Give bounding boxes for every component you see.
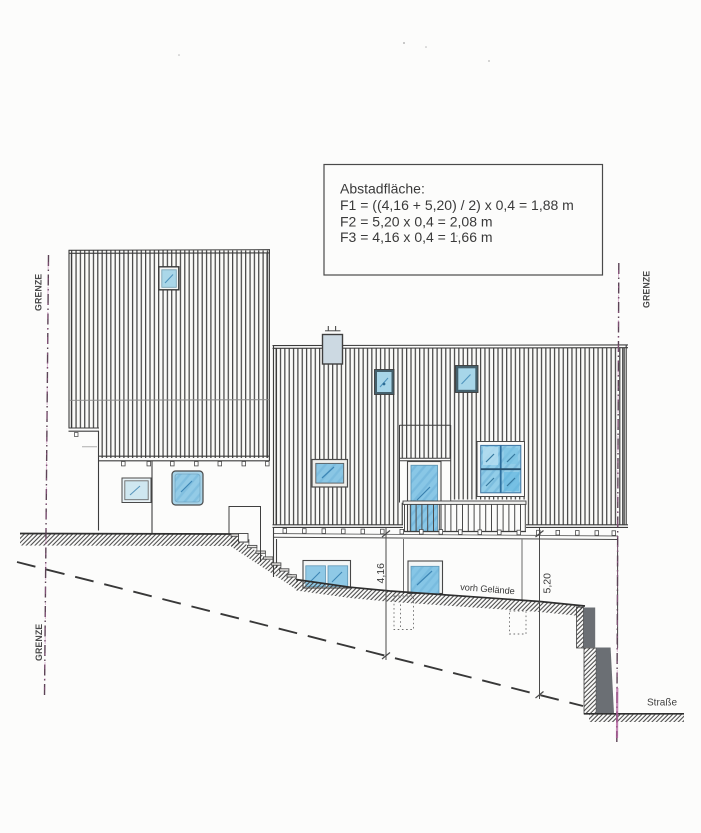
svg-text:F2 = 5,20 x 0,4 = 2,08 m: F2 = 5,20 x 0,4 = 2,08 m <box>340 214 493 230</box>
svg-text:F3 = 4,16 x 0,4 = 1,66 m: F3 = 4,16 x 0,4 = 1,66 m <box>340 229 493 245</box>
svg-text:GRENZE: GRENZE <box>642 271 652 308</box>
svg-text:Abstadfläche:: Abstadfläche: <box>340 181 425 197</box>
svg-text:4,16: 4,16 <box>375 563 387 584</box>
svg-text:GRENZE: GRENZE <box>34 274 44 311</box>
svg-text:F1 = ((4,16 + 5,20) / 2) x 0,4: F1 = ((4,16 + 5,20) / 2) x 0,4 = 1,88 m <box>340 197 574 213</box>
svg-text:GRENZE: GRENZE <box>34 624 44 661</box>
svg-text:Straße: Straße <box>647 698 677 709</box>
svg-text:5,20: 5,20 <box>542 573 554 594</box>
